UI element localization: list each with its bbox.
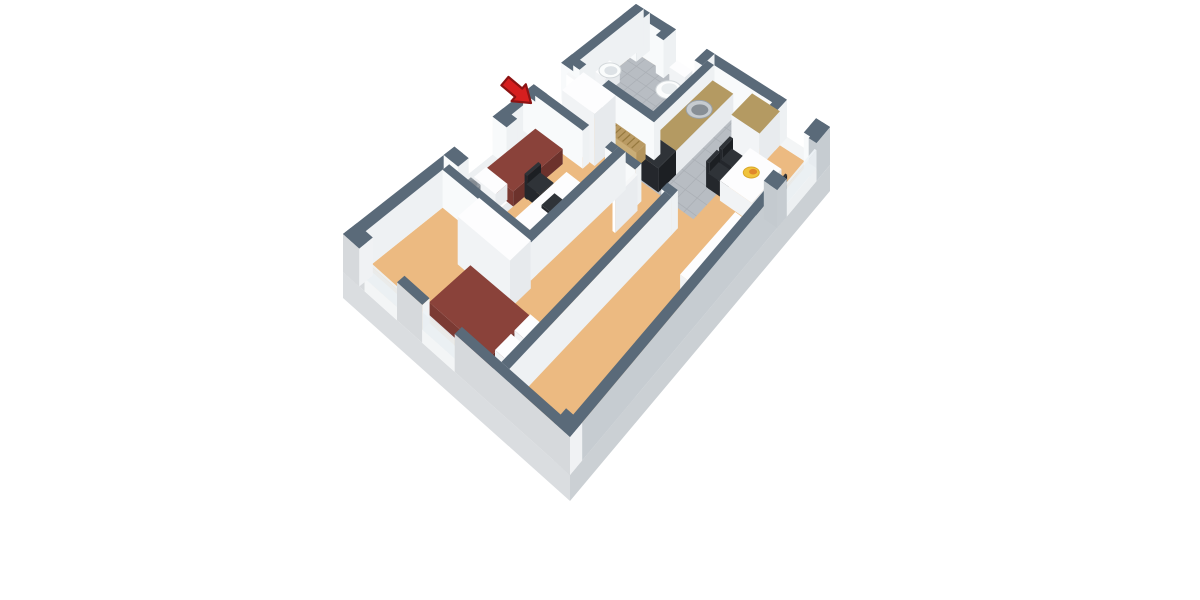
wall-bathroom-south-2-right-face	[654, 116, 660, 160]
wall-hall-bedroom2-2-right-face	[672, 190, 678, 235]
floorplan-canvas	[0, 0, 1200, 600]
floorplan-3d-view	[0, 0, 1200, 600]
wall-bedroom1-south-right-face	[531, 236, 537, 280]
kitchen-sink-basin	[691, 104, 708, 115]
entrance-arrow	[501, 77, 531, 103]
bathroom-sink-bowl	[604, 66, 617, 75]
pier-ne-a-left-face	[656, 35, 664, 78]
wall-bedroom1-north-1-right-face	[583, 125, 590, 169]
fruit	[749, 169, 757, 175]
